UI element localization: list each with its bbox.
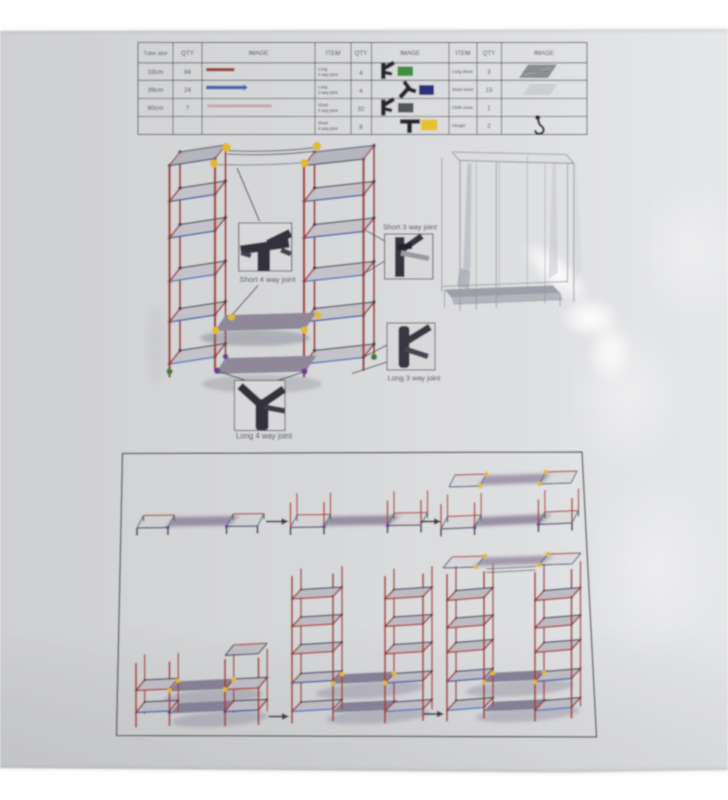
svg-text:84: 84 [184, 69, 192, 76]
svg-text:Short 4 way joint: Short 4 way joint [239, 275, 296, 284]
svg-text:Tube size: Tube size [143, 51, 167, 57]
svg-text:33cm: 33cm [148, 69, 164, 76]
svg-text:7: 7 [186, 105, 190, 112]
svg-text:39cm: 39cm [148, 87, 164, 94]
svg-text:60cm: 60cm [148, 105, 164, 112]
svg-text:3 way joint: 3 way joint [318, 108, 339, 113]
svg-text:Long 4 way joint: Long 4 way joint [236, 432, 293, 441]
svg-text:IMAGE: IMAGE [249, 50, 269, 57]
svg-text:3 way joint: 3 way joint [318, 90, 339, 95]
svg-text:Short 3 way joint: Short 3 way joint [383, 223, 437, 232]
svg-text:ITEM: ITEM [326, 50, 341, 57]
svg-text:4 way joint: 4 way joint [318, 126, 339, 131]
svg-text:Short sheet: Short sheet [452, 87, 474, 92]
svg-text:QTY: QTY [181, 50, 194, 57]
svg-text:24: 24 [184, 87, 192, 94]
svg-text:QTY: QTY [483, 50, 496, 57]
svg-text:IMAGE: IMAGE [400, 50, 420, 57]
svg-text:4: 4 [359, 70, 363, 77]
svg-text:Cloth cover: Cloth cover [452, 105, 474, 110]
svg-text:IMAGE: IMAGE [534, 50, 554, 57]
svg-text:Short: Short [318, 121, 329, 126]
svg-text:Long: Long [318, 67, 328, 72]
svg-text:15: 15 [486, 87, 493, 94]
svg-text:QTY: QTY [355, 50, 368, 57]
svg-text:3: 3 [487, 69, 491, 76]
svg-text:1: 1 [487, 105, 491, 112]
svg-text:2: 2 [487, 123, 491, 130]
svg-text:Hanger: Hanger [452, 123, 466, 128]
svg-text:Long sheet: Long sheet [452, 69, 474, 74]
svg-text:Short: Short [318, 103, 329, 108]
svg-text:4 way joint: 4 way joint [318, 72, 339, 77]
svg-text:Long: Long [318, 85, 328, 90]
svg-text:8: 8 [359, 124, 363, 131]
svg-text:32: 32 [358, 106, 365, 113]
svg-text:Long 3 way joint: Long 3 way joint [388, 374, 441, 383]
svg-text:ITEM: ITEM [456, 50, 471, 57]
svg-text:4: 4 [359, 88, 363, 95]
